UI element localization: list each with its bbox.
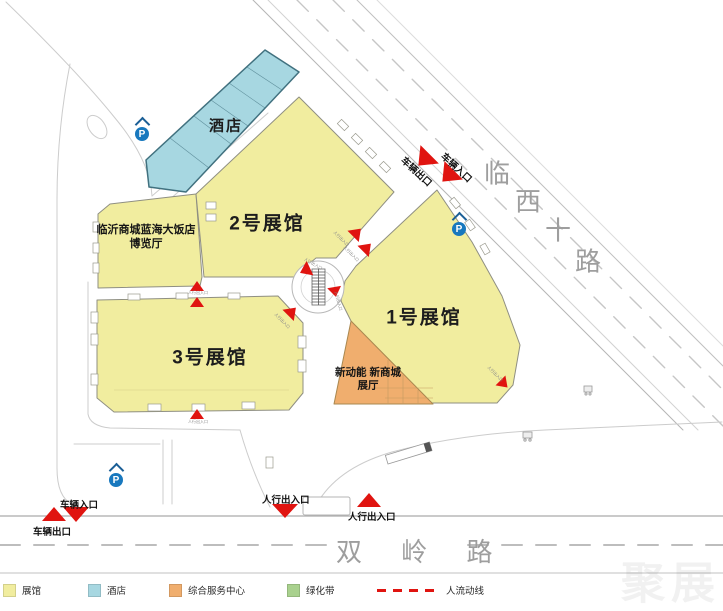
legend-label-green-belt: 绿化带 [306, 583, 335, 597]
flow-arrow-icon [190, 297, 204, 307]
pedestrian-gate-label: 人行出入口 [262, 492, 310, 506]
hall1-label: 1号展馆 [386, 303, 462, 330]
legend-swatch-service-center [169, 584, 182, 597]
legend-item-hall: 展馆 [3, 583, 41, 597]
road-name-shuangling: 双 岭 路 [336, 532, 508, 569]
road-name-linxi-char-3: 十 [545, 211, 571, 248]
parking-marker: P [134, 119, 150, 141]
legend-item-flow-line: 人流动线 [377, 583, 484, 597]
flow-arrow-icon [190, 409, 204, 419]
road-name-linxi-char-4: 路 [575, 242, 601, 279]
pedestrian-gate-label: 人行出入口 [348, 509, 396, 523]
legend-label-flow-line: 人流动线 [446, 583, 484, 597]
road-name-linxi-char-2: 西 [515, 182, 541, 219]
legend: 展馆 酒店 综合服务中心 绿化带 人流动线 [0, 583, 723, 601]
hall3-label: 3号展馆 [172, 343, 248, 370]
flow-line-dash-icon [377, 589, 439, 592]
flow-annotation: 人行出入口 [188, 419, 208, 425]
hall2-label: 2号展馆 [229, 209, 305, 236]
service-center-label-line2: 展厅 [358, 378, 379, 393]
road-name-linxi-char-1: 临 [484, 154, 510, 191]
legend-swatch-green-belt [287, 584, 300, 597]
flow-annotation: 人行出入口 [188, 290, 208, 296]
hotel-label: 酒店 [209, 115, 243, 136]
vehicle-exit-label: 车辆出口 [33, 524, 71, 538]
legend-swatch-hall [3, 584, 16, 597]
legend-label-hall: 展馆 [22, 583, 41, 597]
legend-label-service-center: 综合服务中心 [188, 583, 245, 597]
legend-item-green-belt: 绿化带 [287, 583, 335, 597]
legend-item-hotel: 酒店 [88, 583, 126, 597]
parking-marker: P [451, 214, 467, 236]
pedestrian-gate-arrow-icon [357, 493, 381, 507]
parking-marker: P [108, 465, 124, 487]
vehicle-entrance-label: 车辆入口 [60, 497, 98, 511]
pedestrian-gate-arrow-icon [272, 504, 298, 518]
watermark: 聚展 [621, 547, 721, 611]
site-plan-map: 临 西 十 路 双 岭 路 酒店 2号展馆 1号展馆 3号展馆 临沂商城蓝海大饭… [0, 0, 723, 611]
legend-label-hotel: 酒店 [107, 583, 126, 597]
expo-hall-label-line2: 博览厅 [130, 235, 163, 251]
legend-item-service-center: 综合服务中心 [169, 583, 245, 597]
legend-swatch-hotel [88, 584, 101, 597]
